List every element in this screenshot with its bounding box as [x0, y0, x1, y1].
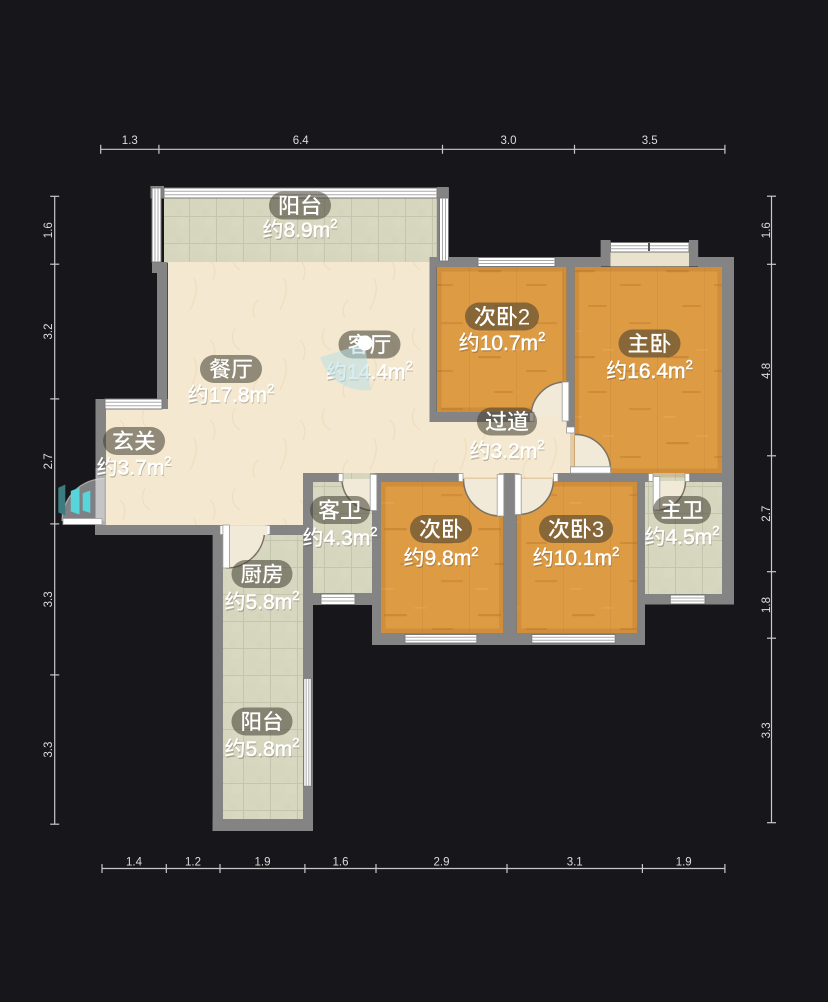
svg-text:3.5: 3.5 [642, 135, 658, 147]
svg-text:2: 2 [330, 216, 337, 231]
svg-text:2.9: 2.9 [434, 857, 450, 869]
svg-text:3.3: 3.3 [43, 742, 55, 758]
svg-text:4.5m: 4.5m [666, 526, 713, 549]
svg-text:2.7: 2.7 [43, 453, 55, 469]
svg-text:10.7m: 10.7m [480, 332, 538, 355]
svg-text:3.1: 3.1 [567, 857, 583, 869]
svg-text:2: 2 [370, 524, 377, 539]
svg-text:16.4m: 16.4m [627, 360, 685, 383]
svg-text:10.1m: 10.1m [554, 547, 612, 570]
svg-text:2: 2 [518, 304, 530, 329]
svg-text:1.6: 1.6 [333, 857, 349, 869]
svg-text:2: 2 [712, 523, 719, 538]
svg-text:1.6: 1.6 [761, 222, 773, 238]
svg-text:3.2m: 3.2m [491, 440, 538, 463]
svg-text:1.2: 1.2 [185, 857, 201, 869]
svg-text:1.6: 1.6 [43, 222, 55, 238]
svg-text:1.4: 1.4 [126, 857, 143, 869]
svg-text:5.8m: 5.8m [246, 738, 293, 761]
svg-text:3.0: 3.0 [501, 135, 517, 147]
svg-text:2: 2 [267, 381, 274, 396]
svg-text:2: 2 [292, 588, 299, 603]
svg-text:1.3: 1.3 [122, 135, 138, 147]
svg-text:3.2: 3.2 [43, 324, 55, 340]
svg-text:2: 2 [686, 357, 693, 372]
svg-text:1.9: 1.9 [676, 857, 692, 869]
svg-text:6.4: 6.4 [293, 135, 310, 147]
svg-text:2: 2 [537, 437, 544, 452]
svg-text:4.8: 4.8 [761, 363, 773, 379]
svg-text:1.8: 1.8 [761, 597, 773, 613]
svg-text:2: 2 [538, 329, 545, 344]
svg-text:2: 2 [164, 454, 171, 469]
svg-text:8.9m: 8.9m [284, 219, 331, 242]
svg-text:17.8m: 17.8m [209, 384, 267, 407]
svg-text:3.7m: 3.7m [118, 457, 165, 480]
svg-text:1.9: 1.9 [255, 857, 271, 869]
svg-text:5.8m: 5.8m [246, 591, 293, 614]
svg-text:3.3: 3.3 [761, 722, 773, 738]
svg-text:4.3m: 4.3m [324, 527, 371, 550]
svg-text:3: 3 [592, 517, 604, 542]
svg-text:2: 2 [612, 544, 619, 559]
svg-text:9.8m: 9.8m [425, 547, 472, 570]
svg-text:2.7: 2.7 [761, 506, 773, 522]
svg-text:2: 2 [471, 544, 478, 559]
svg-text:3.3: 3.3 [43, 591, 55, 607]
svg-text:2: 2 [406, 358, 413, 373]
svg-text:2: 2 [292, 735, 299, 750]
